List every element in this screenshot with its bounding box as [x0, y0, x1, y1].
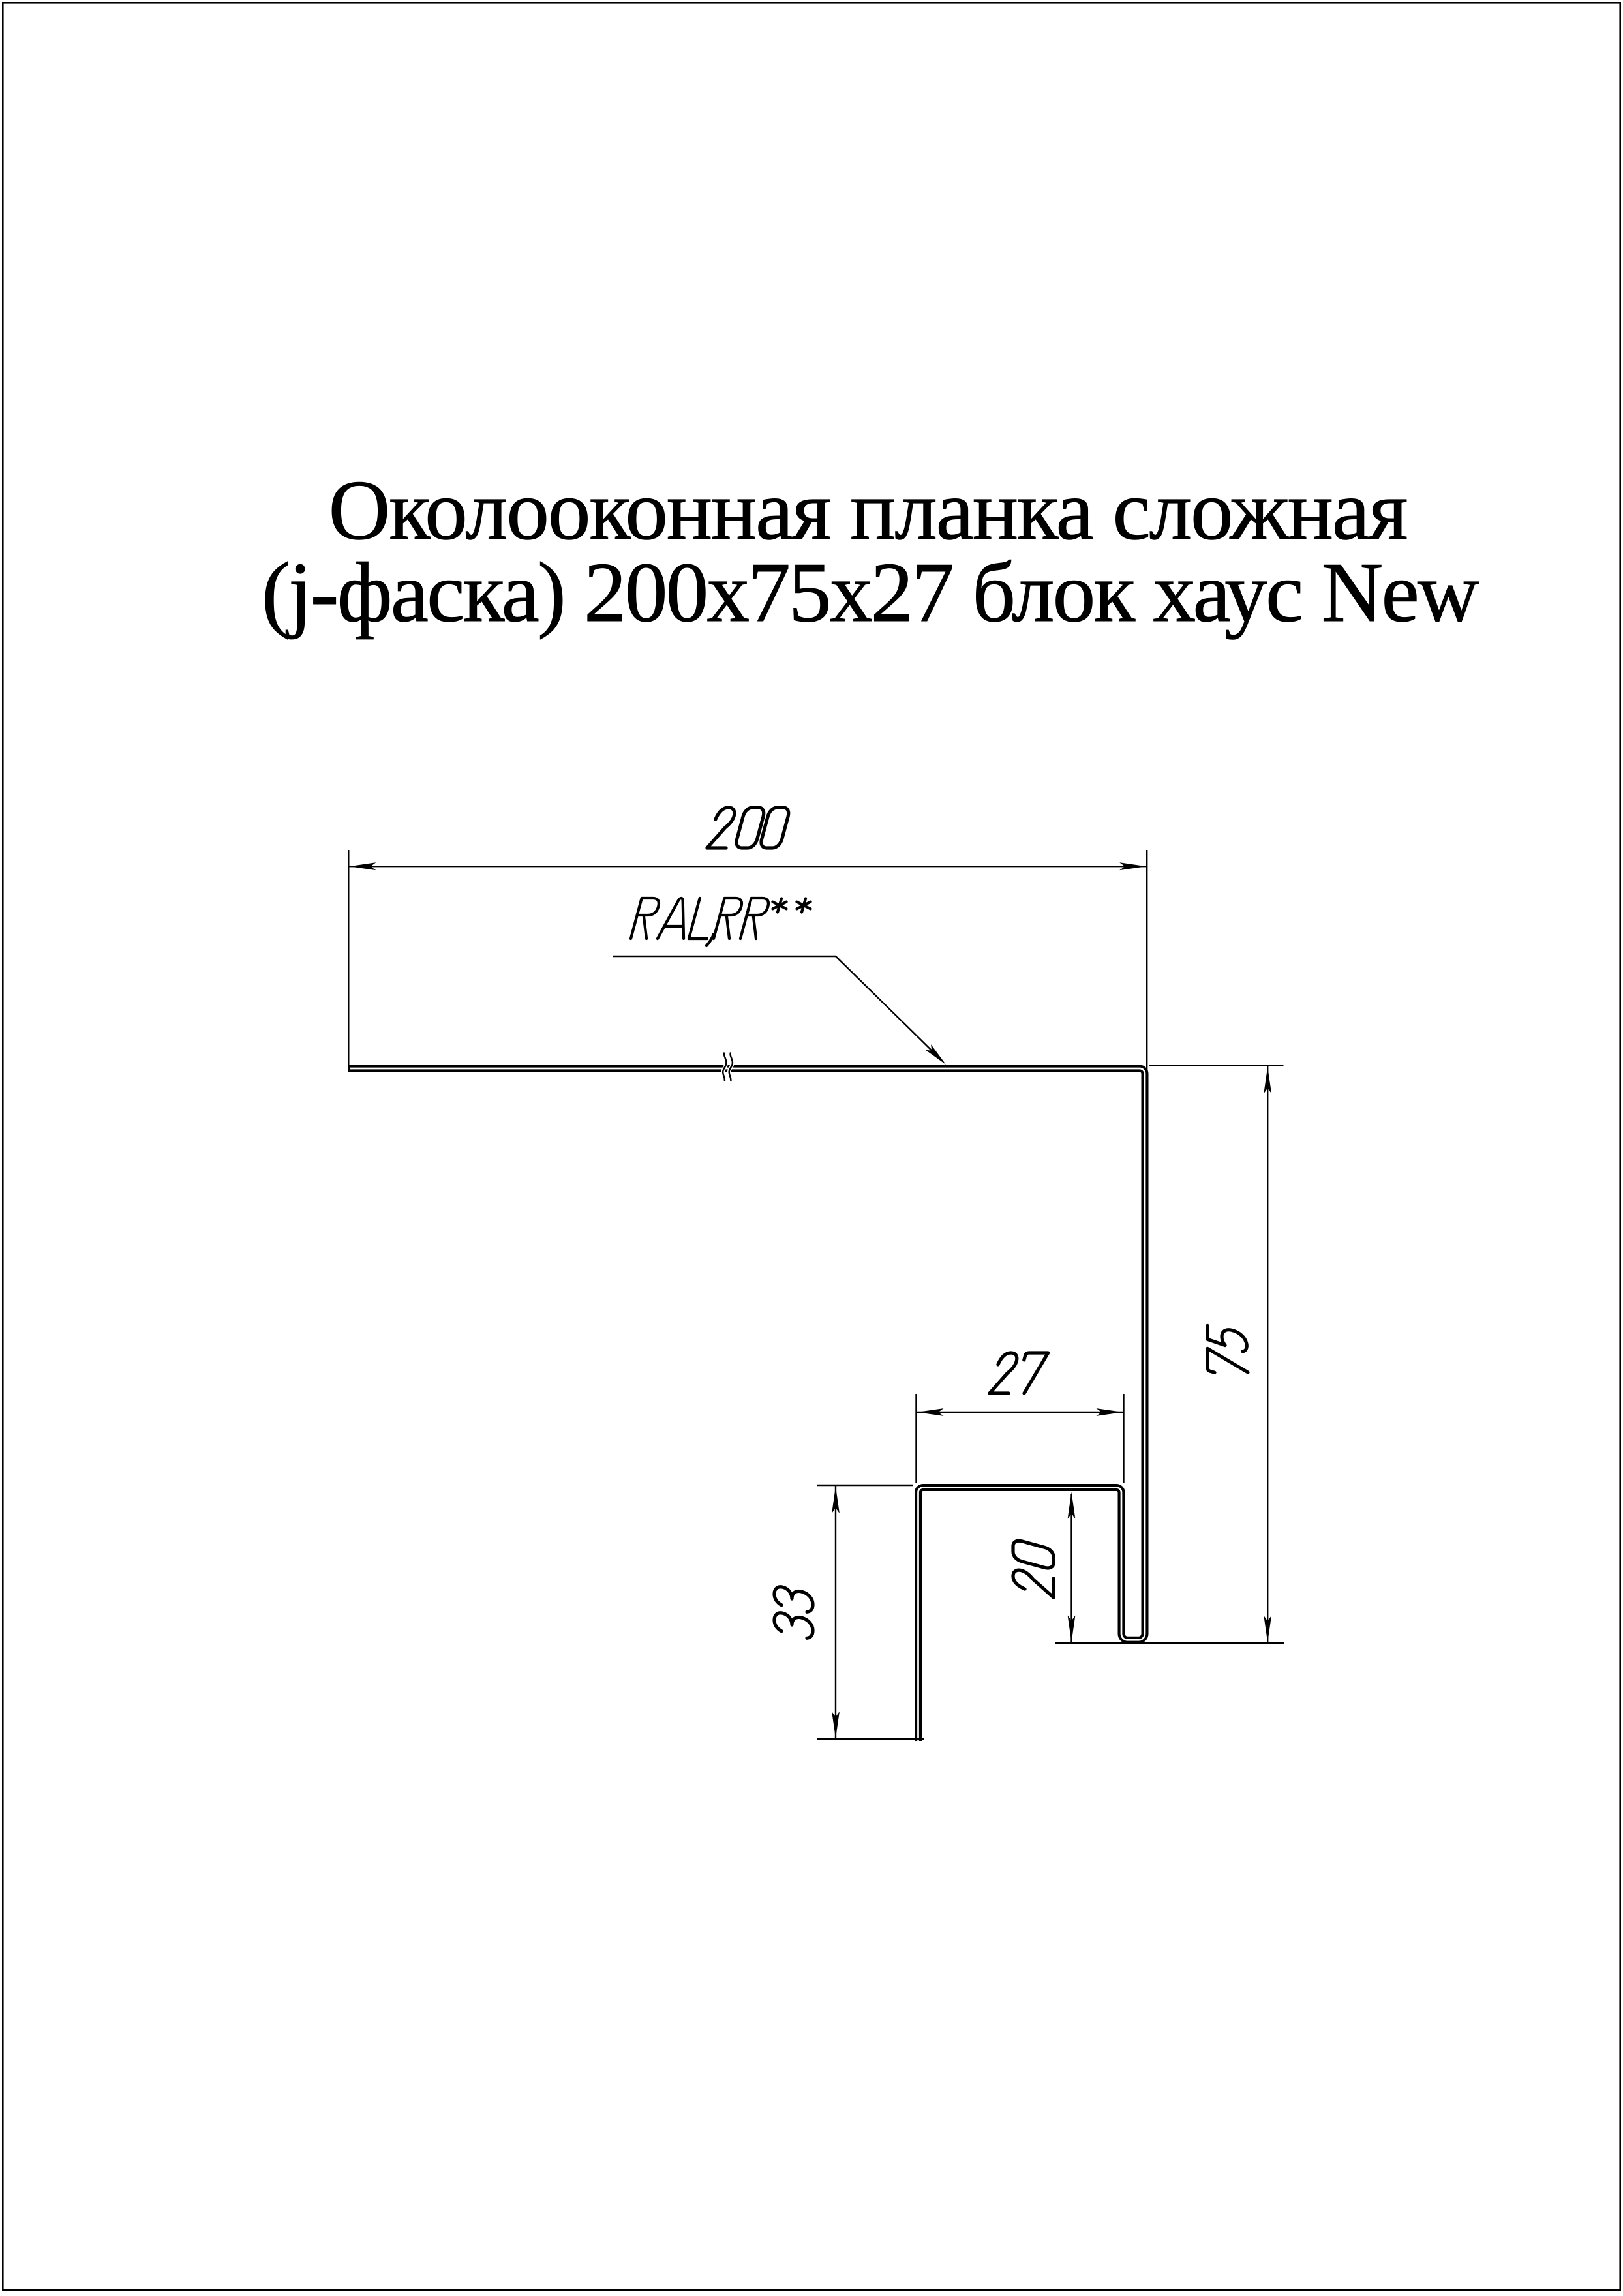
svg-text:(j-фаска) 200х75х27 блок хаус: (j-фаска) 200х75х27 блок хаус New — [262, 545, 1479, 640]
svg-text:Околооконная планка сложная: Околооконная планка сложная — [329, 463, 1407, 558]
